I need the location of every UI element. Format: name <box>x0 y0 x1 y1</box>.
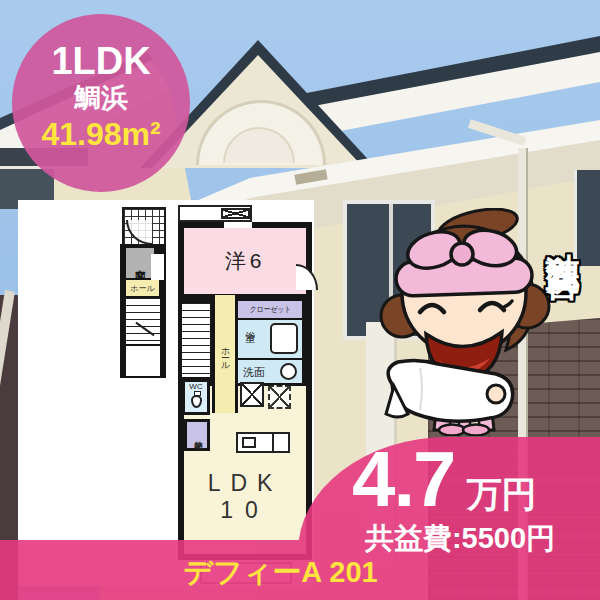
layout-type: 1LDK <box>51 42 150 80</box>
property-badge: 1LDK 鯛浜 41.98m² <box>12 14 190 192</box>
location-name: 鯛浜 <box>74 85 128 112</box>
rent-unit: 万円 <box>466 471 536 518</box>
property-name: デフィーA 201 <box>148 553 413 593</box>
rent-price: 4.7 万円 <box>352 440 536 518</box>
listing-image: 玄関 ホール 洋6 LDK 10 クローゼット 浴室 洗面 <box>0 0 600 600</box>
floor-area: 41.98m² <box>41 118 160 150</box>
mascot-girl-with-towel-icon <box>378 208 558 436</box>
rent-amount: 4.7 <box>352 440 454 518</box>
feature-text: 独立洗面台 <box>546 226 580 241</box>
